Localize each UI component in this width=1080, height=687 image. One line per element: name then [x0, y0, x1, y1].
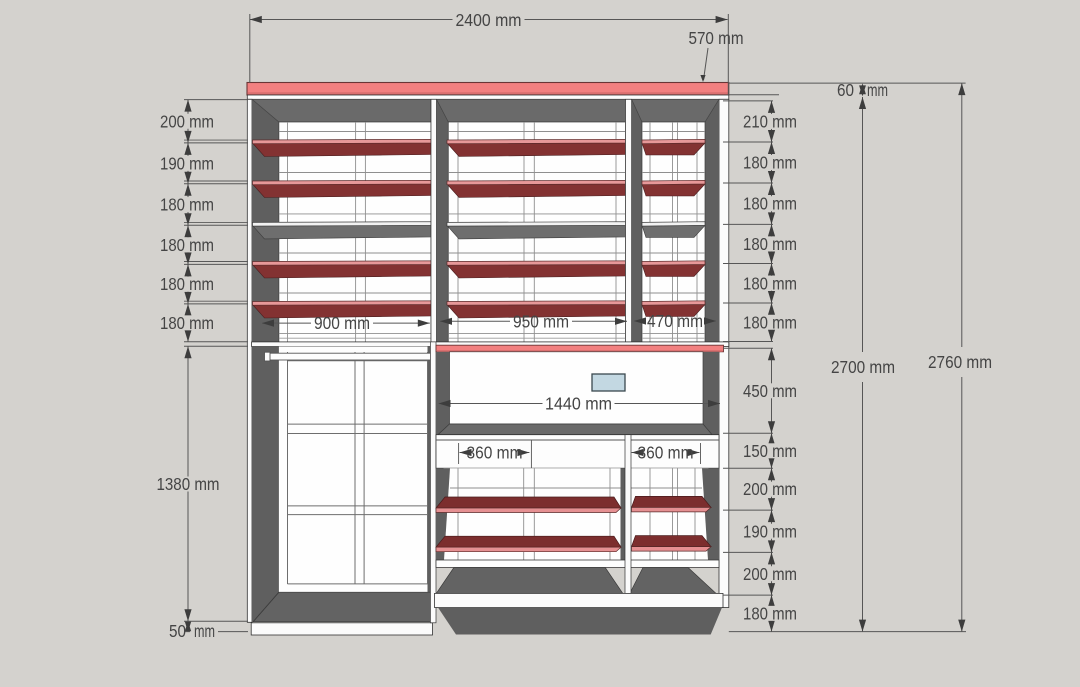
svg-text:180 mm: 180 mm	[743, 234, 797, 254]
svg-text:180 mm: 180 mm	[743, 312, 797, 332]
svg-text:180 mm: 180 mm	[743, 273, 797, 293]
svg-text:1380 mm: 1380 mm	[157, 474, 220, 494]
svg-text:200 mm: 200 mm	[743, 564, 797, 584]
svg-text:180 mm: 180 mm	[743, 194, 797, 214]
svg-text:190 mm: 190 mm	[160, 153, 214, 173]
svg-text:210 mm: 210 mm	[743, 111, 797, 131]
svg-text:mm: mm	[194, 621, 215, 641]
svg-text:180 mm: 180 mm	[160, 195, 214, 215]
svg-text:150 mm: 150 mm	[743, 441, 797, 461]
svg-text:900 mm: 900 mm	[314, 313, 370, 333]
svg-text:180 mm: 180 mm	[160, 313, 214, 333]
svg-text:2760 mm: 2760 mm	[928, 352, 992, 372]
svg-text:180 mm: 180 mm	[160, 274, 214, 294]
svg-text:950 mm: 950 mm	[513, 311, 569, 331]
svg-text:180 mm: 180 mm	[743, 153, 797, 173]
svg-text:mm: mm	[867, 80, 888, 100]
svg-text:470 mm: 470 mm	[647, 311, 703, 331]
svg-text:360 mm: 360 mm	[638, 443, 694, 463]
svg-text:200 mm: 200 mm	[160, 111, 214, 131]
svg-text:360 mm: 360 mm	[467, 443, 523, 463]
svg-text:180 mm: 180 mm	[160, 235, 214, 255]
svg-text:200 mm: 200 mm	[743, 479, 797, 499]
svg-text:50: 50	[169, 621, 186, 641]
svg-text:450 mm: 450 mm	[743, 381, 797, 401]
svg-text:2700 mm: 2700 mm	[831, 357, 895, 377]
svg-text:180 mm: 180 mm	[743, 603, 797, 623]
svg-text:570 mm: 570 mm	[689, 28, 744, 48]
svg-text:190 mm: 190 mm	[743, 521, 797, 541]
svg-text:2400 mm: 2400 mm	[456, 10, 522, 30]
svg-text:60: 60	[837, 80, 854, 100]
svg-text:1440 mm: 1440 mm	[545, 394, 612, 414]
